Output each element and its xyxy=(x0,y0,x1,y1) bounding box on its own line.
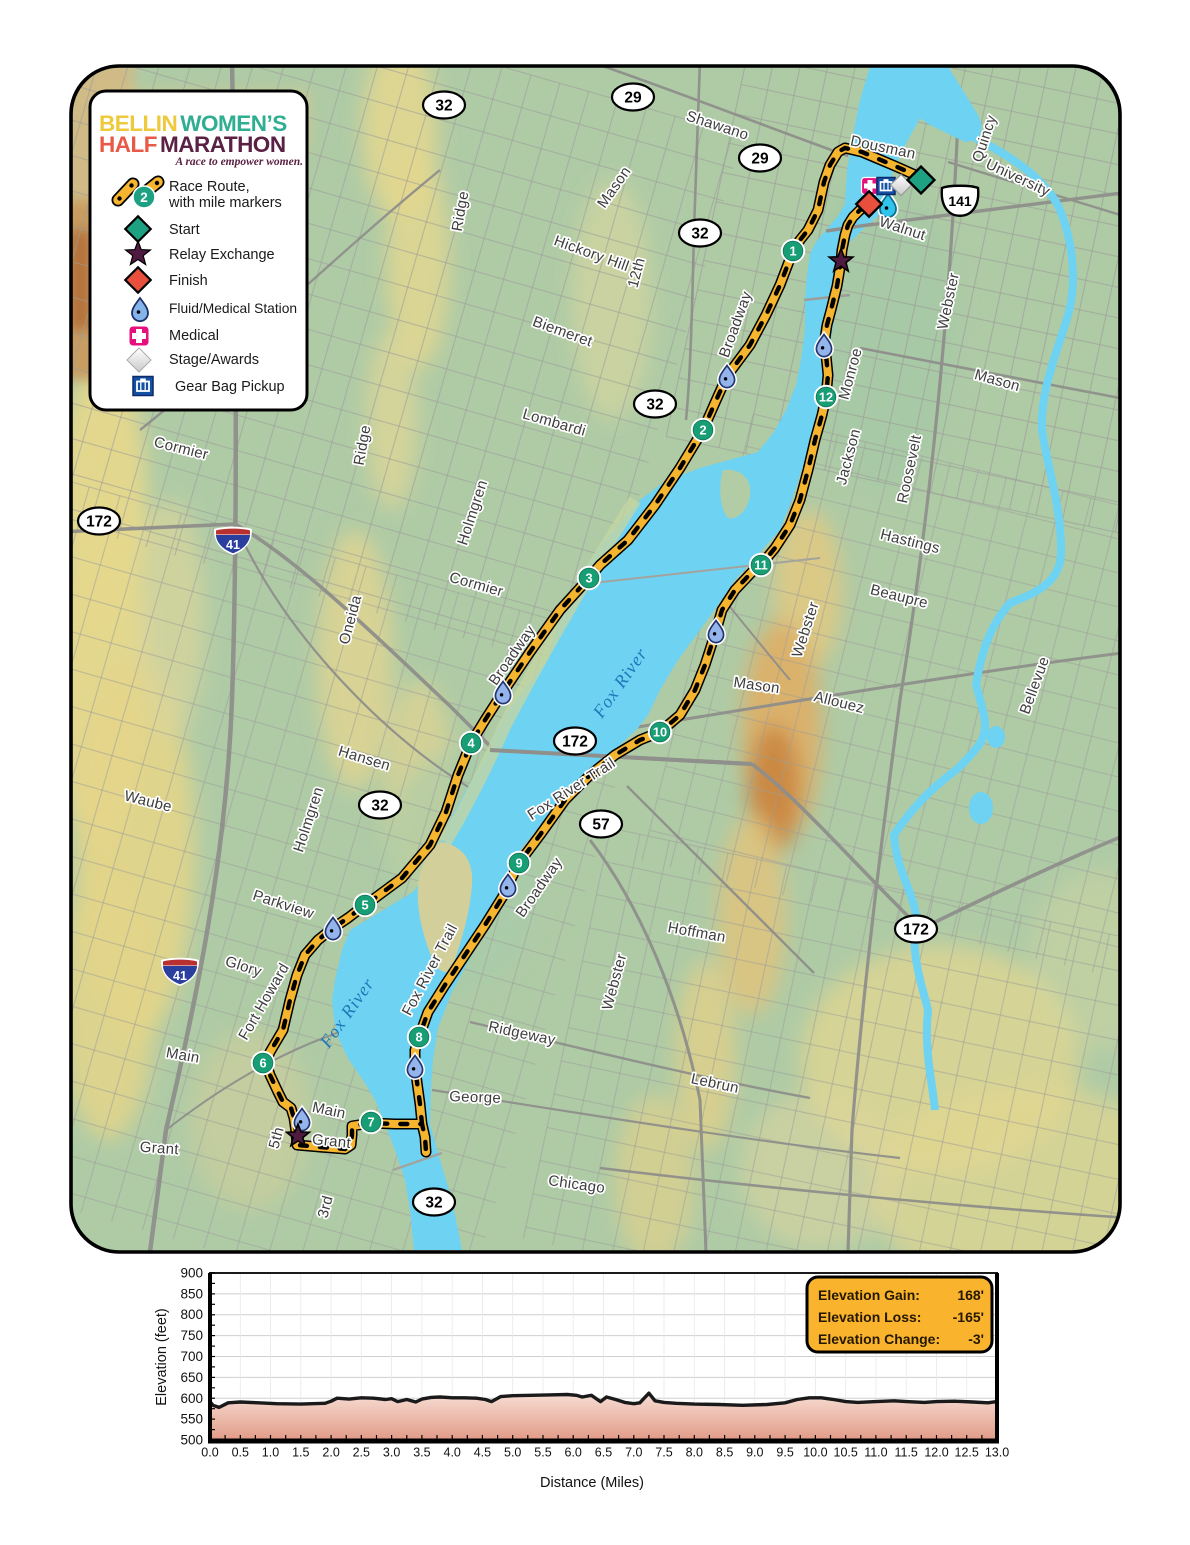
svg-text:12: 12 xyxy=(819,390,833,405)
svg-text:4.5: 4.5 xyxy=(474,1446,491,1460)
svg-text:A race to empower women.: A race to empower women. xyxy=(175,156,303,168)
svg-text:5.5: 5.5 xyxy=(534,1446,551,1460)
svg-text:5.0: 5.0 xyxy=(504,1446,521,1460)
svg-text:3.0: 3.0 xyxy=(383,1446,400,1460)
svg-text:29: 29 xyxy=(751,151,769,168)
svg-text:11.5: 11.5 xyxy=(894,1446,917,1460)
svg-text:6.0: 6.0 xyxy=(565,1446,582,1460)
svg-text:550: 550 xyxy=(180,1412,203,1427)
svg-text:8: 8 xyxy=(415,1030,422,1045)
svg-text:32: 32 xyxy=(435,98,452,115)
svg-text:172: 172 xyxy=(903,922,929,939)
svg-text:9: 9 xyxy=(515,856,522,871)
svg-text:7.0: 7.0 xyxy=(625,1446,642,1460)
svg-text:Relay Exchange: Relay Exchange xyxy=(169,247,275,263)
svg-text:10.0: 10.0 xyxy=(803,1446,827,1460)
svg-text:800: 800 xyxy=(180,1307,203,1322)
svg-text:Distance (Miles): Distance (Miles) xyxy=(540,1475,644,1491)
svg-text:41: 41 xyxy=(226,538,240,552)
svg-text:3: 3 xyxy=(585,571,592,586)
svg-text:13.0: 13.0 xyxy=(985,1446,1009,1460)
svg-text:Medical: Medical xyxy=(169,328,219,344)
svg-text:57: 57 xyxy=(592,817,609,834)
svg-text:Elevation (feet): Elevation (feet) xyxy=(154,1308,170,1406)
svg-text:172: 172 xyxy=(86,514,112,531)
svg-text:32: 32 xyxy=(691,226,708,243)
svg-text:172: 172 xyxy=(562,734,588,751)
svg-text:-165': -165' xyxy=(953,1309,984,1325)
svg-text:750: 750 xyxy=(180,1328,203,1343)
svg-text:700: 700 xyxy=(180,1349,203,1364)
svg-text:Grant: Grant xyxy=(139,1139,180,1159)
svg-text:32: 32 xyxy=(425,1195,442,1212)
svg-text:1.0: 1.0 xyxy=(262,1446,279,1460)
svg-text:29: 29 xyxy=(624,90,642,107)
svg-text:12.5: 12.5 xyxy=(955,1446,979,1460)
svg-text:11.0: 11.0 xyxy=(864,1446,887,1460)
svg-text:650: 650 xyxy=(180,1370,203,1385)
svg-text:-3': -3' xyxy=(968,1331,984,1347)
svg-text:Elevation Loss:: Elevation Loss: xyxy=(818,1309,921,1325)
svg-text:Elevation Gain:: Elevation Gain: xyxy=(818,1287,920,1303)
svg-text:8.5: 8.5 xyxy=(716,1446,733,1460)
svg-text:32: 32 xyxy=(646,397,663,414)
svg-text:168': 168' xyxy=(957,1287,984,1303)
svg-text:Race Route,: Race Route, xyxy=(169,179,250,195)
svg-text:George: George xyxy=(449,1088,501,1107)
svg-text:8.0: 8.0 xyxy=(686,1446,703,1460)
svg-text:850: 850 xyxy=(180,1286,203,1301)
svg-text:4.0: 4.0 xyxy=(444,1446,461,1460)
svg-text:5: 5 xyxy=(361,898,368,913)
svg-text:41: 41 xyxy=(173,969,187,983)
svg-text:3.5: 3.5 xyxy=(413,1446,430,1460)
svg-text:2.5: 2.5 xyxy=(353,1446,370,1460)
svg-text:2: 2 xyxy=(699,423,706,438)
svg-text:7.5: 7.5 xyxy=(655,1446,672,1460)
svg-text:500: 500 xyxy=(180,1433,203,1448)
svg-text:600: 600 xyxy=(180,1391,203,1406)
svg-text:0.5: 0.5 xyxy=(232,1446,249,1460)
svg-text:7: 7 xyxy=(367,1115,374,1130)
svg-text:HALFMARATHON: HALFMARATHON xyxy=(99,132,286,157)
svg-text:Start: Start xyxy=(169,222,200,238)
svg-text:Gear Bag Pickup: Gear Bag Pickup xyxy=(175,379,285,395)
svg-text:Finish: Finish xyxy=(169,273,208,289)
svg-text:0.0: 0.0 xyxy=(201,1446,218,1460)
svg-text:2.0: 2.0 xyxy=(322,1446,339,1460)
svg-text:Stage/Awards: Stage/Awards xyxy=(169,352,259,368)
svg-text:32: 32 xyxy=(371,798,388,815)
svg-text:11: 11 xyxy=(754,558,768,573)
svg-text:Elevation Change:: Elevation Change: xyxy=(818,1331,940,1347)
svg-text:1.5: 1.5 xyxy=(292,1446,309,1460)
svg-text:6: 6 xyxy=(259,1056,266,1071)
svg-text:12.0: 12.0 xyxy=(924,1446,948,1460)
svg-text:10: 10 xyxy=(653,725,667,740)
svg-text:141: 141 xyxy=(948,193,972,209)
svg-text:6.5: 6.5 xyxy=(595,1446,612,1460)
svg-text:10.5: 10.5 xyxy=(834,1446,858,1460)
svg-text:9.0: 9.0 xyxy=(746,1446,763,1460)
svg-text:9.5: 9.5 xyxy=(776,1446,793,1460)
svg-text:4: 4 xyxy=(467,736,475,751)
svg-text:Fluid/Medical Station: Fluid/Medical Station xyxy=(169,301,297,316)
svg-text:with mile markers: with mile markers xyxy=(168,195,282,211)
svg-text:1: 1 xyxy=(789,244,796,259)
svg-text:900: 900 xyxy=(180,1266,203,1281)
svg-text:2: 2 xyxy=(140,190,148,205)
